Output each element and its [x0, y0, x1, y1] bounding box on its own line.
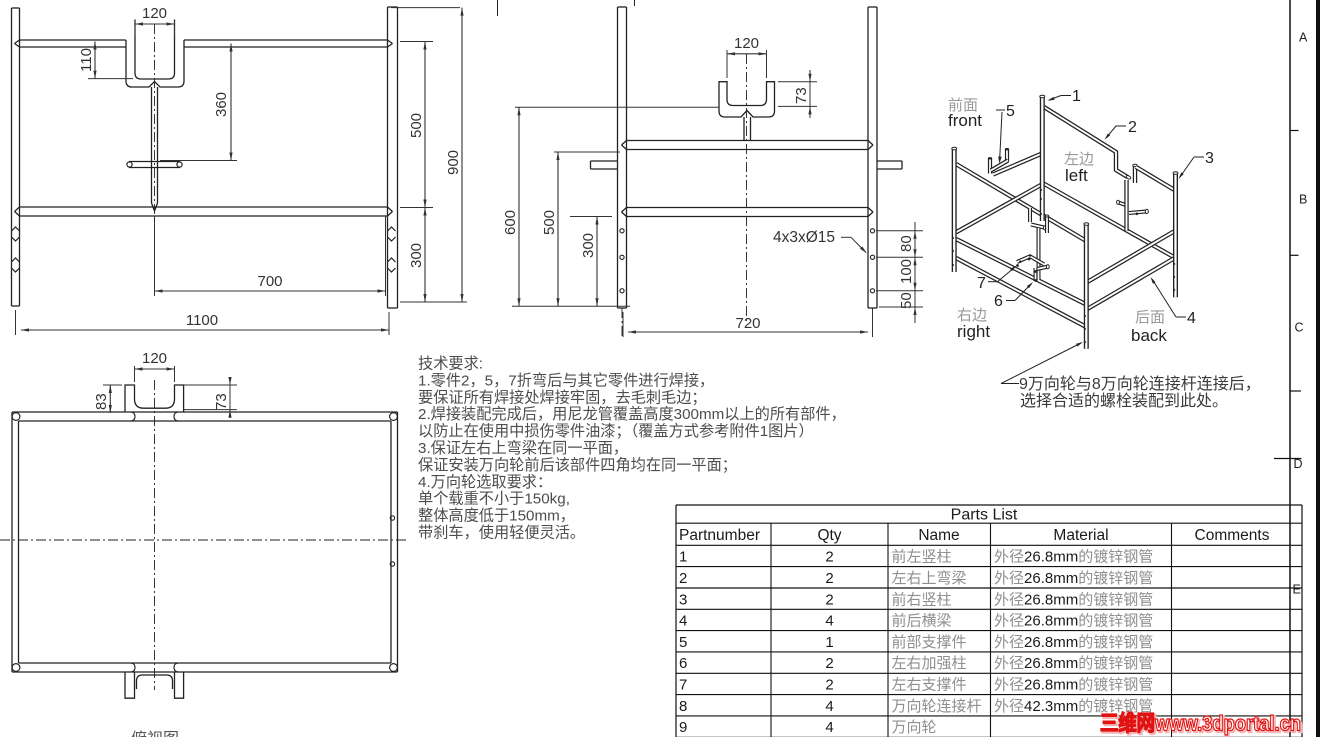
svg-text:1100: 1100 — [186, 312, 218, 329]
svg-text:1.零件2，5，7折弯后与其它零件进行焊接，: 1.零件2，5，7折弯后与其它零件进行焊接， — [418, 371, 714, 389]
svg-text:500: 500 — [408, 113, 425, 138]
svg-text:外径26.8mm的镀锌钢管: 外径26.8mm的镀锌钢管 — [994, 677, 1153, 694]
svg-text:73: 73 — [793, 87, 810, 104]
svg-text:720: 720 — [735, 315, 760, 332]
svg-text:Parts List: Parts List — [951, 507, 1018, 524]
svg-text:300: 300 — [580, 233, 597, 258]
svg-text:5: 5 — [1006, 103, 1015, 120]
svg-text:Material: Material — [1053, 527, 1108, 544]
svg-text:500: 500 — [541, 210, 558, 235]
svg-text:外径26.8mm的镀锌钢管: 外径26.8mm的镀锌钢管 — [994, 591, 1153, 608]
svg-text:外径26.8mm的镀锌钢管: 外径26.8mm的镀锌钢管 — [994, 613, 1153, 630]
svg-text:整体高度低于150mm，: 整体高度低于150mm， — [418, 508, 575, 525]
svg-text:4: 4 — [825, 698, 833, 715]
svg-text:7: 7 — [679, 677, 687, 694]
svg-text:80: 80 — [898, 235, 915, 252]
svg-text:4: 4 — [825, 719, 833, 736]
svg-text:120: 120 — [734, 35, 759, 52]
svg-text:要保证所有焊接处焊接牢固，去毛刺毛边；: 要保证所有焊接处焊接牢固，去毛刺毛边； — [418, 389, 707, 406]
svg-text:万向轮连接杆: 万向轮连接杆 — [892, 698, 982, 715]
svg-text:4.万向轮选取要求：: 4.万向轮选取要求： — [418, 474, 552, 491]
svg-text:360: 360 — [213, 92, 230, 117]
svg-text:back: back — [1131, 326, 1167, 345]
svg-text:83: 83 — [93, 393, 110, 410]
svg-text:6: 6 — [679, 655, 687, 672]
svg-text:单个载重不小于150kg,: 单个载重不小于150kg, — [418, 491, 570, 508]
svg-text:7: 7 — [977, 275, 986, 292]
svg-text:带刹车，使用轻便灵活。: 带刹车，使用轻便灵活。 — [418, 525, 585, 542]
svg-text:2: 2 — [825, 591, 833, 608]
svg-text:1: 1 — [825, 634, 833, 651]
svg-text:3: 3 — [679, 591, 687, 608]
svg-text:前左竖柱: 前左竖柱 — [892, 549, 952, 566]
svg-text:9: 9 — [679, 719, 687, 736]
svg-text:E: E — [1293, 583, 1301, 597]
svg-text:以防止在使用中损伤零件油漆；（覆盖方式参考附件1图片）: 以防止在使用中损伤零件油漆；（覆盖方式参考附件1图片） — [418, 423, 814, 440]
svg-text:2: 2 — [825, 655, 833, 672]
svg-text:1: 1 — [679, 549, 687, 566]
svg-text:1: 1 — [1072, 88, 1081, 105]
svg-text:后面: 后面 — [1135, 309, 1165, 326]
svg-text:300: 300 — [408, 243, 425, 268]
svg-text:左右加强柱: 左右加强柱 — [892, 655, 967, 672]
svg-text:C: C — [1295, 321, 1304, 335]
svg-text:73: 73 — [213, 393, 230, 410]
svg-text:D: D — [1294, 457, 1303, 471]
svg-text:120: 120 — [142, 5, 167, 22]
svg-text:front: front — [948, 111, 982, 130]
svg-text:left: left — [1065, 166, 1088, 185]
svg-text:Partnumber: Partnumber — [679, 527, 760, 544]
svg-text:Name: Name — [918, 527, 959, 544]
svg-text:2: 2 — [825, 549, 833, 566]
svg-text:right: right — [957, 322, 990, 341]
svg-text:2: 2 — [825, 570, 833, 587]
svg-text:技术要求:: 技术要求: — [418, 356, 483, 373]
svg-text:选择合适的螺栓装配到此处。: 选择合适的螺栓装配到此处。 — [1020, 392, 1228, 410]
svg-text:Qty: Qty — [817, 527, 841, 544]
svg-text:600: 600 — [502, 210, 519, 235]
svg-text:900: 900 — [445, 150, 462, 175]
svg-text:前后横梁: 前后横梁 — [892, 613, 952, 630]
svg-text:万向轮: 万向轮 — [892, 719, 937, 736]
svg-text:外径26.8mm的镀锌钢管: 外径26.8mm的镀锌钢管 — [994, 655, 1153, 672]
svg-text:2.焊接装配完成后，用尼龙管覆盖高度300mm以上的所有部件: 2.焊接装配完成后，用尼龙管覆盖高度300mm以上的所有部件， — [418, 406, 846, 423]
svg-text:三维网www.3dportal.cn: 三维网www.3dportal.cn — [1100, 711, 1301, 736]
svg-text:9万向轮与8万向轮连接杆连接后，: 9万向轮与8万向轮连接杆连接后， — [1019, 375, 1261, 393]
svg-text:100: 100 — [898, 259, 915, 284]
svg-text:Comments: Comments — [1195, 527, 1270, 544]
svg-text:3: 3 — [1205, 150, 1214, 167]
svg-text:外径26.8mm的镀锌钢管: 外径26.8mm的镀锌钢管 — [994, 549, 1153, 566]
svg-text:4: 4 — [825, 613, 833, 630]
svg-text:700: 700 — [257, 273, 282, 290]
svg-text:4: 4 — [679, 613, 687, 630]
svg-text:8: 8 — [679, 698, 687, 715]
svg-text:A: A — [1299, 31, 1308, 45]
svg-text:B: B — [1299, 193, 1307, 207]
svg-text:110: 110 — [78, 48, 95, 72]
svg-text:4x3xØ15: 4x3xØ15 — [773, 229, 835, 246]
svg-text:2: 2 — [1128, 119, 1137, 136]
svg-text:左右支撑件: 左右支撑件 — [892, 677, 967, 694]
svg-text:6: 6 — [994, 293, 1003, 310]
svg-text:左右上弯梁: 左右上弯梁 — [892, 570, 967, 587]
svg-text:俯视图: 俯视图 — [131, 730, 179, 737]
svg-text:外径26.8mm的镀锌钢管: 外径26.8mm的镀锌钢管 — [994, 570, 1153, 587]
svg-text:3.保证左右上弯梁在同一平面，: 3.保证左右上弯梁在同一平面， — [418, 440, 628, 457]
svg-text:2: 2 — [825, 677, 833, 694]
svg-text:外径26.8mm的镀锌钢管: 外径26.8mm的镀锌钢管 — [994, 634, 1153, 651]
svg-text:前右竖柱: 前右竖柱 — [892, 591, 952, 608]
svg-text:2: 2 — [679, 570, 687, 587]
svg-text:50: 50 — [898, 292, 915, 309]
svg-text:120: 120 — [142, 350, 167, 367]
svg-text:前部支撑件: 前部支撑件 — [892, 634, 967, 651]
svg-text:4: 4 — [1187, 310, 1196, 327]
svg-text:5: 5 — [679, 634, 687, 651]
svg-text:保证安装万向轮前后该部件四角均在同一平面；: 保证安装万向轮前后该部件四角均在同一平面； — [418, 457, 737, 474]
